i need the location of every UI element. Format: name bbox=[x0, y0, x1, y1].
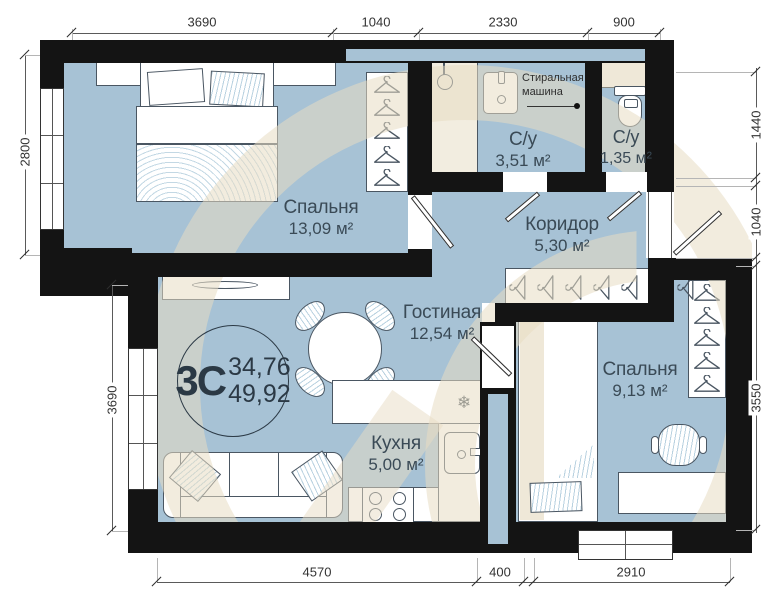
entry-frame-line bbox=[671, 192, 672, 258]
vent-shaft bbox=[488, 394, 508, 544]
dim-bottom-3: 2910 bbox=[614, 565, 649, 580]
wall-bedroom1-right-stub bbox=[408, 249, 432, 277]
wall-bedroom2-right bbox=[726, 280, 752, 553]
window-bedroom-2 bbox=[578, 530, 673, 560]
wall-bedroom2-top bbox=[495, 303, 674, 322]
area-upper: 34,76 bbox=[228, 354, 291, 382]
wall-bedroom1-bottom bbox=[40, 253, 418, 277]
doorway-entry bbox=[646, 192, 674, 258]
apartment-type-badge: 3С 34,76 49,92 bbox=[177, 325, 289, 437]
washing-machine-dot bbox=[574, 103, 580, 109]
washing-machine-leader bbox=[527, 106, 577, 107]
dim-right-1: 1440 bbox=[749, 108, 764, 143]
window-living bbox=[128, 348, 158, 490]
dim-top-3: 2330 bbox=[486, 15, 521, 30]
room-label-bedroom-2: Спальня 9,13 м² bbox=[603, 358, 678, 402]
room-label-corridor: Коридор 5,30 м² bbox=[525, 213, 599, 257]
washing-machine-label: Стиральная машина bbox=[522, 72, 592, 100]
room-label-bedroom-1: Спальня 13,09 м² bbox=[284, 196, 359, 240]
floor-plan: ❄ bbox=[0, 0, 784, 600]
dim-line-top bbox=[72, 33, 660, 34]
area-lower: 49,92 bbox=[228, 381, 291, 409]
doorway-bathroom bbox=[503, 172, 547, 192]
doorway-bedroom-2 bbox=[482, 326, 514, 388]
dim-left-1: 2800 bbox=[18, 135, 33, 170]
wall-right-top bbox=[645, 40, 674, 192]
room-label-living: Гостиная 12,54 м² bbox=[403, 301, 481, 345]
dim-line-bottom bbox=[157, 582, 730, 583]
doorway-wc bbox=[606, 172, 647, 192]
entry-frame-line bbox=[648, 192, 649, 258]
dim-top-4: 900 bbox=[610, 15, 638, 30]
dim-right-2: 1040 bbox=[749, 205, 764, 240]
dim-bottom-1: 4570 bbox=[300, 565, 335, 580]
wall-bedroom2-topright bbox=[674, 258, 752, 280]
wall-top-inset bbox=[346, 49, 654, 61]
dim-left-2: 3690 bbox=[105, 383, 120, 418]
room-label-bathroom: С/у 3,51 м² bbox=[495, 128, 550, 172]
room-label-wc: С/у 1,35 м² bbox=[600, 127, 652, 168]
dim-top-2: 1040 bbox=[359, 15, 394, 30]
dim-bottom-2: 400 bbox=[486, 565, 514, 580]
room-label-kitchen: Кухня 5,00 м² bbox=[368, 432, 423, 476]
apartment-type: 3С bbox=[175, 357, 225, 405]
window-bedroom-1 bbox=[40, 88, 64, 230]
dim-top-1: 3690 bbox=[185, 15, 220, 30]
dim-right-3: 3550 bbox=[749, 381, 764, 416]
